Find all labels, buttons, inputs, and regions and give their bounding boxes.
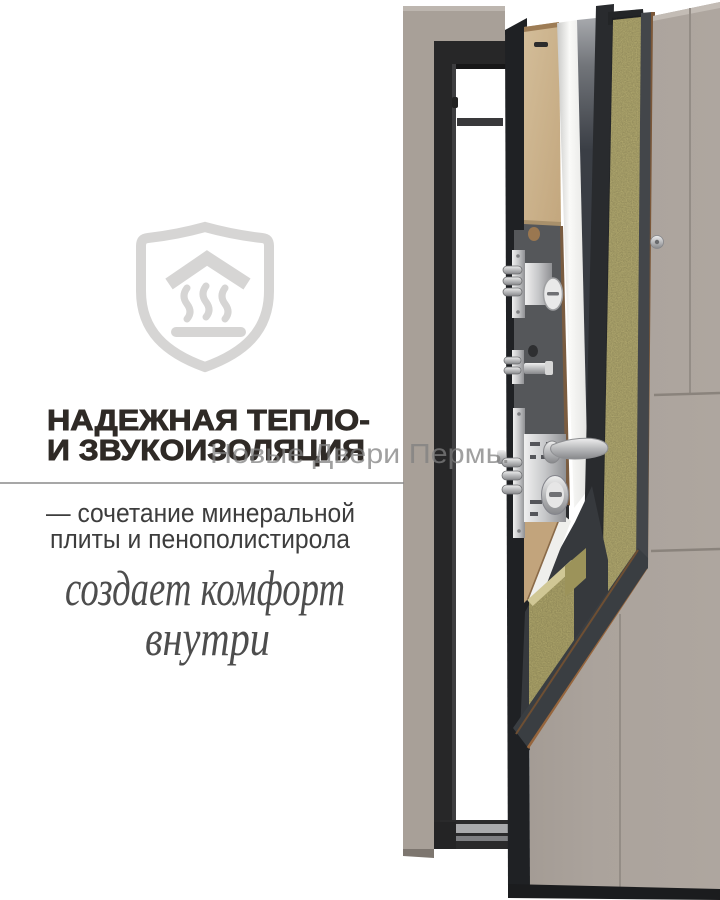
svg-text:плиты и пенополистирола: плиты и пенополистирола <box>50 524 351 554</box>
svg-text:НАДЕЖНАЯ ТЕПЛО-: НАДЕЖНАЯ ТЕПЛО- <box>47 405 370 437</box>
svg-text:создает комфорт: создает комфорт <box>65 560 345 616</box>
svg-text:Новые Двери Пермь.: Новые Двери Пермь. <box>210 438 510 469</box>
svg-text:внутри: внутри <box>145 610 270 666</box>
